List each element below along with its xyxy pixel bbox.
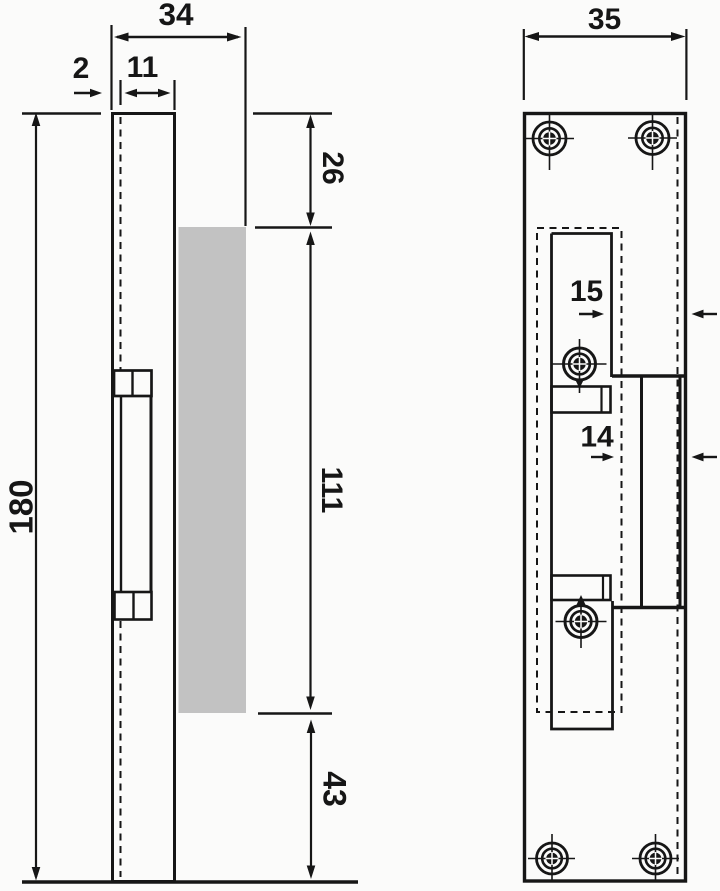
svg-text:26: 26 bbox=[316, 151, 349, 184]
svg-text:2: 2 bbox=[73, 52, 90, 85]
svg-text:180: 180 bbox=[3, 479, 40, 534]
svg-text:15: 15 bbox=[570, 275, 603, 308]
svg-text:111: 111 bbox=[315, 467, 348, 514]
svg-text:35: 35 bbox=[588, 3, 621, 36]
svg-text:43: 43 bbox=[317, 771, 353, 807]
svg-text:14: 14 bbox=[580, 421, 614, 454]
svg-text:34: 34 bbox=[158, 0, 194, 32]
svg-text:11: 11 bbox=[127, 51, 159, 84]
